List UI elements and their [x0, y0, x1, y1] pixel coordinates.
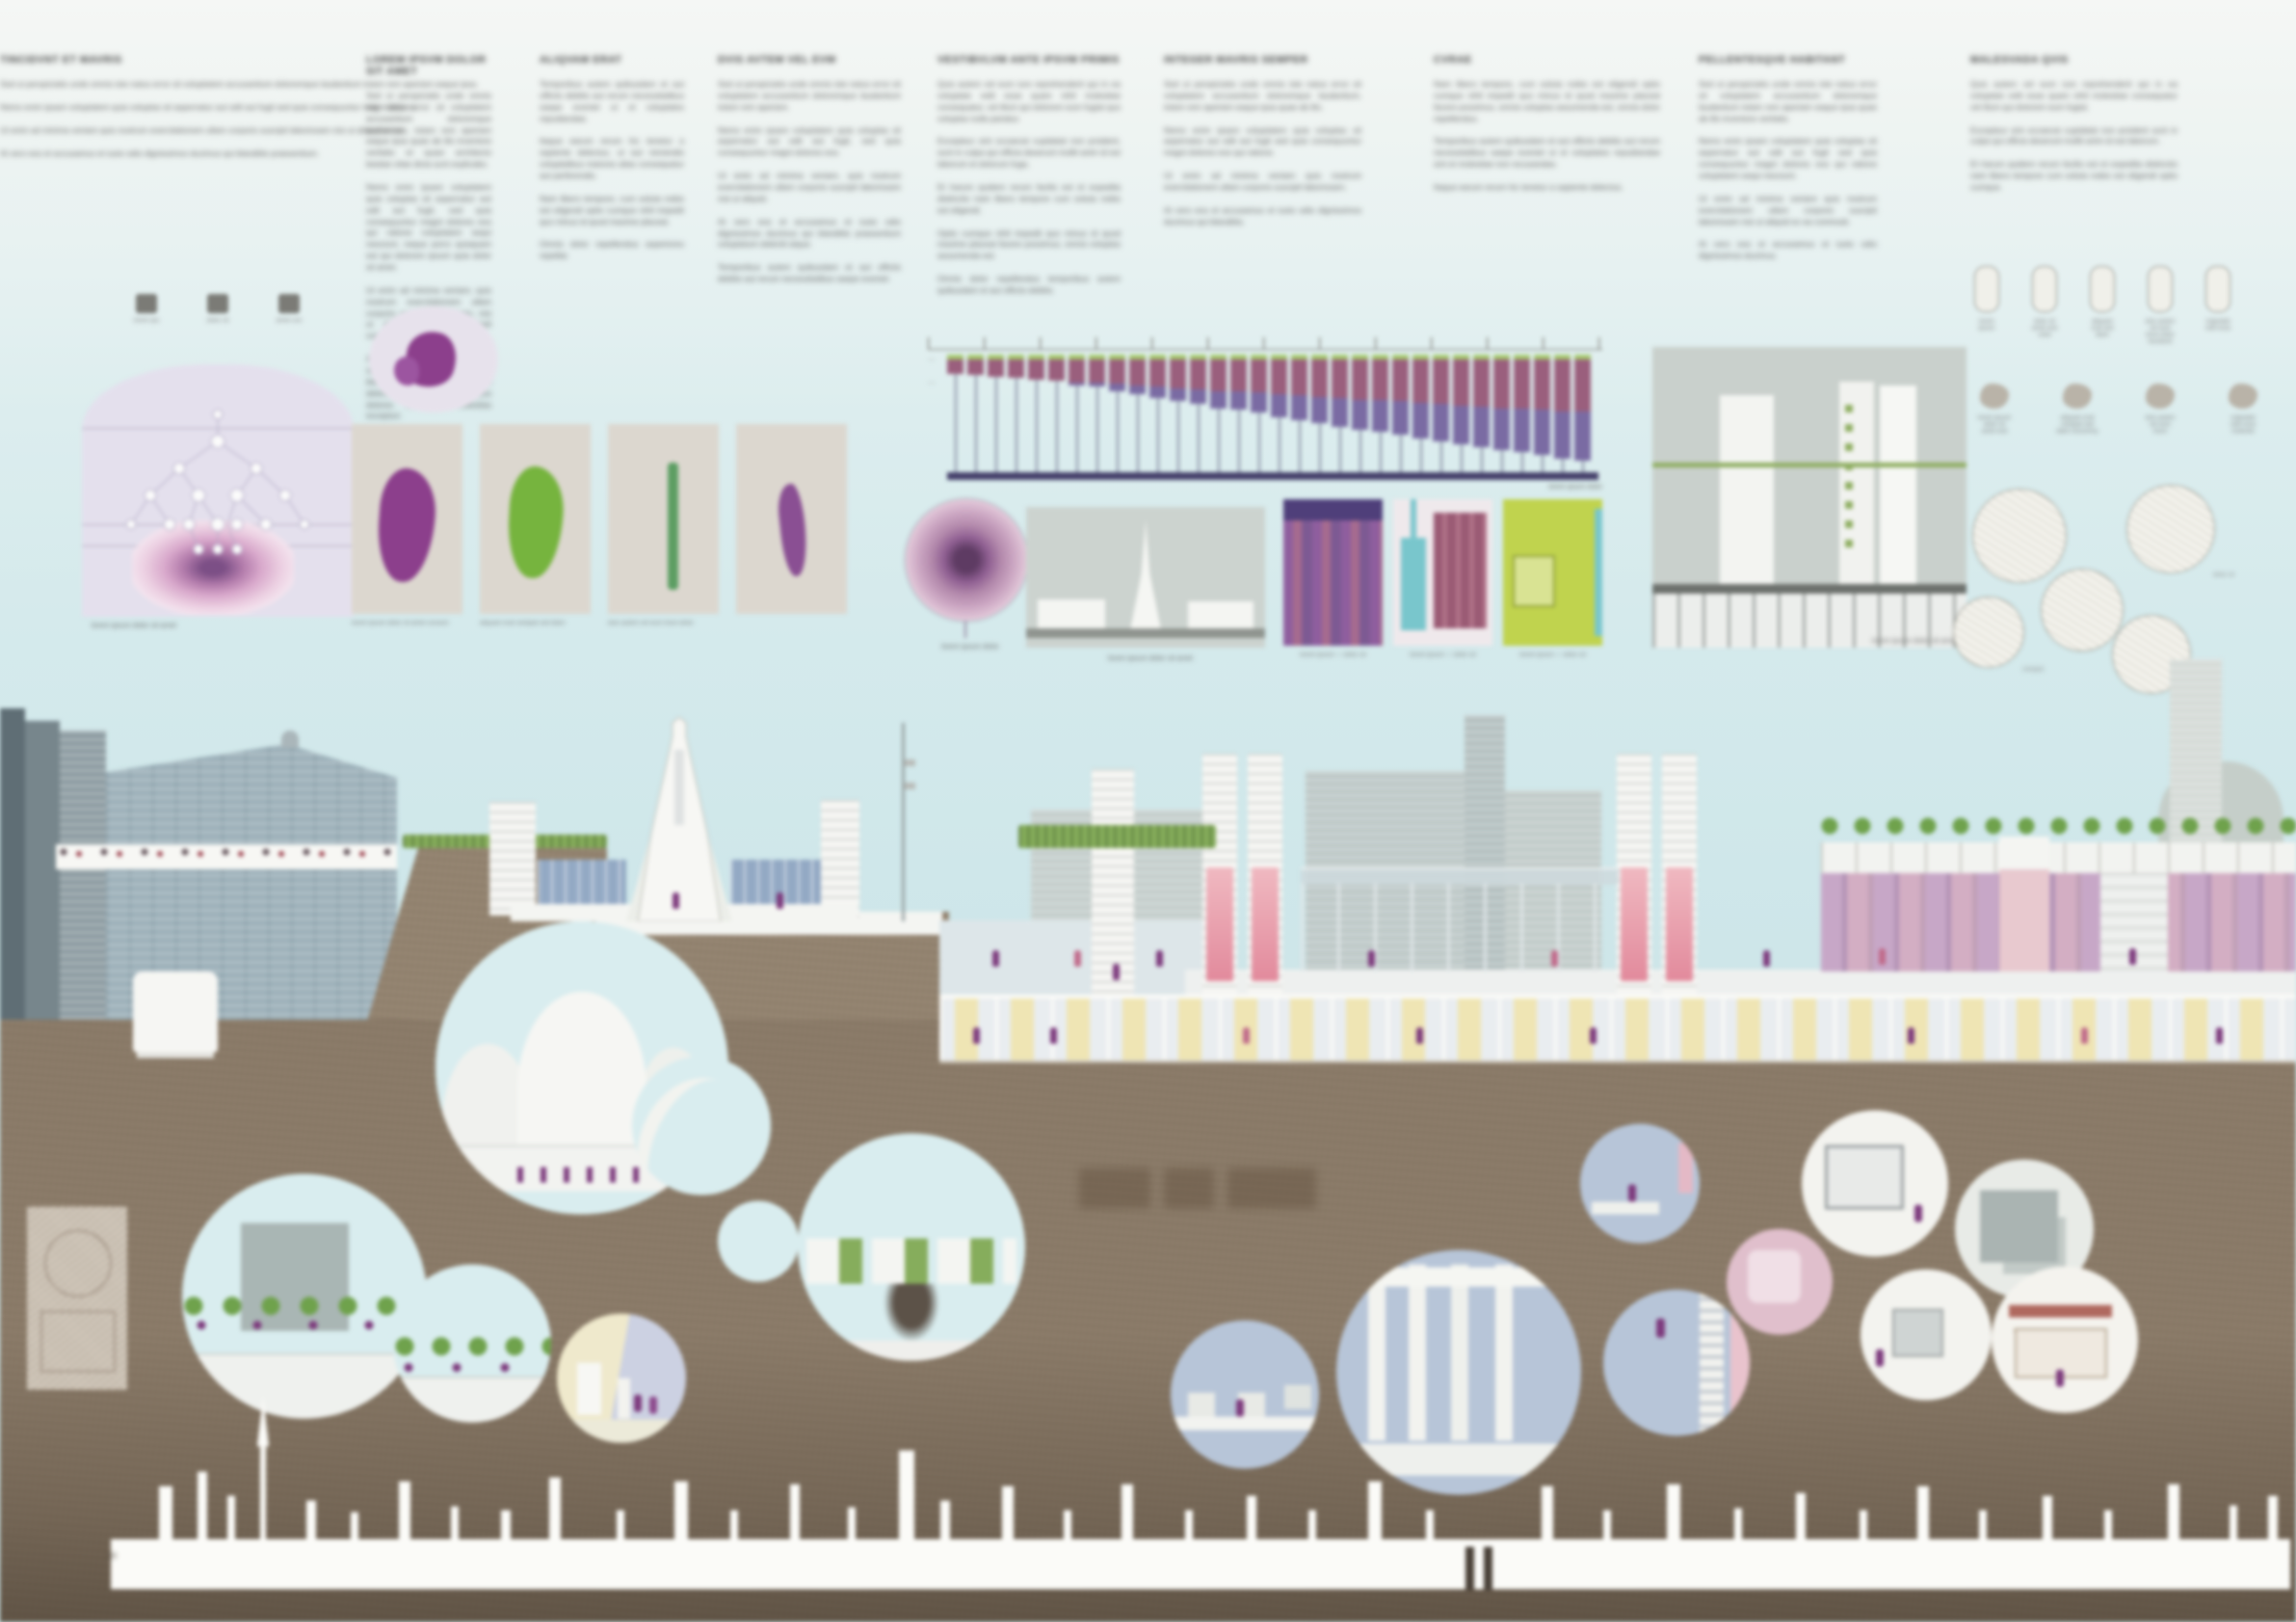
column-paragraph: Et harum quidem rerum facilis est et exp… — [1970, 159, 2177, 194]
mast-flag — [905, 783, 915, 789]
section-caption: lorem ipsum dolor sit amet — [1812, 636, 1957, 646]
legend-item: amet con — [266, 294, 312, 324]
callout-detail — [634, 1395, 642, 1412]
callout-circle — [182, 1174, 427, 1419]
skyline-spike — [159, 1486, 172, 1539]
capsule-icon — [2090, 266, 2115, 312]
chart-y-label: –– — [928, 357, 935, 363]
person-figure — [1590, 1027, 1597, 1044]
skyline-spike — [1484, 1547, 1492, 1590]
skyline-spike — [617, 1510, 624, 1539]
column-paragraph: Itaque earum rerum hic tenetur a sapient… — [1434, 182, 1660, 194]
sunken-plaza — [939, 920, 1207, 997]
plan-rect-motif — [40, 1311, 116, 1372]
legend-item: lorem ips — [123, 294, 170, 324]
person-figure — [1908, 1027, 1914, 1044]
phase-column — [967, 355, 984, 375]
phase-column — [1372, 355, 1388, 432]
callout-circle — [1861, 1269, 1992, 1400]
callout-detail — [1825, 1145, 1904, 1210]
skyline-spike — [451, 1506, 459, 1539]
mast-flag — [905, 759, 915, 766]
sketch-label: duis autem vel eum iriure — [2131, 414, 2189, 435]
sketch-circle — [1953, 597, 2024, 668]
person-figure — [673, 892, 679, 909]
flank-tower-west — [489, 802, 536, 916]
skyline-spike — [1426, 1510, 1434, 1539]
phase-column — [1028, 355, 1044, 380]
column-paragraph: Optio cumque nihil impedit quo minus id … — [937, 228, 1121, 263]
callout-detail — [1592, 1202, 1658, 1215]
skyline-spike — [306, 1501, 316, 1539]
elevation-wing — [1188, 601, 1254, 628]
column-paragraph: At vero eos et accusamus et iusto odio d… — [1699, 239, 1877, 262]
floor-plan — [1393, 499, 1492, 646]
glass-building-dome — [281, 731, 299, 748]
legend-label: lorem ips — [123, 317, 170, 324]
chart-y-label: –– — [928, 380, 935, 386]
sketch-label: aliquam erat volutpat sed diam nonummy — [2048, 414, 2106, 435]
terrace-balustrade-with-people — [56, 844, 397, 869]
phase-column — [1453, 355, 1469, 444]
node-network — [82, 364, 354, 617]
phase-column — [1392, 355, 1409, 435]
roof-hedge — [1018, 825, 1216, 848]
plaza-tower — [1662, 754, 1697, 995]
column-paragraph: Sed ut perspiciatis unde omnis iste natu… — [1699, 79, 1877, 124]
skyline-spike — [790, 1484, 800, 1539]
callout-detail — [1678, 1143, 1693, 1193]
skyline-spike — [549, 1477, 561, 1539]
urban-section-panel: lorem ipsum dolor sit amet — [1652, 347, 1966, 648]
city-map-tile — [736, 424, 847, 614]
section-tower — [1720, 395, 1774, 584]
map-panel — [736, 424, 847, 626]
phase-column — [1554, 355, 1570, 459]
skyline-spike — [1979, 1510, 1987, 1539]
silo-row — [1821, 873, 2296, 971]
phase-column — [1069, 355, 1085, 386]
column-heading: MALESVADA QVIS — [1970, 54, 2177, 66]
phase-column — [1210, 355, 1227, 409]
chart-base-datum — [947, 472, 1598, 480]
callout-detail — [393, 1337, 551, 1378]
ghost-lettering — [1227, 1168, 1316, 1209]
section-ground-band — [1652, 584, 1966, 594]
legend-label: amet con — [266, 317, 312, 324]
skyline-spike — [1542, 1486, 1553, 1539]
person-figure — [1074, 950, 1081, 967]
person-figure — [1416, 1027, 1423, 1044]
sketch-circle — [2126, 485, 2215, 573]
column-heading: PELLENTESQVE HABITANT — [1699, 54, 1877, 66]
callout-circle — [1802, 1110, 1948, 1257]
plan-caption: lorem ipsum — dolor sit — [1393, 651, 1492, 658]
phase-column — [1433, 355, 1449, 441]
skyline-spike — [351, 1512, 358, 1539]
chart-bars — [947, 355, 1598, 472]
column-paragraph: Excepteur sint occaecat cupidatat non pr… — [1970, 125, 2177, 148]
phase-column — [1008, 355, 1024, 378]
phase-column — [1352, 355, 1368, 430]
column-paragraph: Ut enim ad minima veniam, quis nostrum e… — [718, 171, 901, 205]
legend-label: dolor sit — [195, 317, 241, 324]
column-paragraph: Quis autem vel eum iure reprehenderit qu… — [937, 79, 1121, 124]
column-paragraph: Nemo enim ipsam voluptatem quia voluptas… — [1699, 136, 1877, 181]
phase-column — [1251, 355, 1267, 412]
skyline-scale-bar: 20 — [0, 1475, 2296, 1622]
capsule-icon — [2148, 266, 2173, 312]
skyline-spike — [1368, 1481, 1382, 1539]
skyline-spike — [674, 1481, 688, 1539]
survey-mast — [902, 723, 905, 921]
text-column: ALIQVAM ERAT Temporibus autem quibusdam … — [540, 54, 684, 274]
elevation-caption: lorem ipsum dolor sit amet — [1108, 653, 1262, 663]
left-dark-building — [0, 708, 25, 1026]
site-blob-2 — [394, 357, 419, 386]
person-figure — [2129, 948, 2136, 965]
callout-circle — [1727, 1229, 1833, 1335]
phase-column — [1534, 355, 1550, 455]
column-heading: VESTIBVLVM ANTE IPSVM PRIMIS — [937, 54, 1121, 66]
text-column: MALESVADA QVIS Quis autem vel eum iure r… — [1970, 54, 2177, 205]
person-figure — [1113, 964, 1120, 980]
plan-caption: lorem ipsum — dolor sit — [1503, 651, 1602, 658]
callout-detail — [1628, 1184, 1636, 1202]
map-highlight-blob — [375, 466, 438, 584]
elevation-panel — [1026, 507, 1265, 648]
plan-caption: lorem ipsum — dolor sit — [1283, 651, 1383, 658]
plan-panel: lorem ipsum — dolor sit — [1503, 499, 1602, 658]
column-paragraph: Nemo enim ipsam voluptatem quia voluptas… — [718, 125, 901, 160]
person-figure — [777, 892, 783, 909]
phase-column — [1271, 355, 1287, 417]
chart-top-ruler — [928, 337, 1602, 350]
sketch-label: lorem ipsum dolor sit amet erat — [1966, 414, 2023, 435]
person-figure — [1879, 948, 1886, 965]
skyline-spike — [1185, 1510, 1193, 1539]
column-paragraph: Temporibus autem quibusdam et aut offici… — [718, 262, 901, 285]
callout-detail — [577, 1363, 600, 1415]
pink-banner — [1621, 867, 1649, 981]
sketch-circle-label: volutpat — [2022, 666, 2044, 673]
skyline-spike — [730, 1510, 738, 1539]
callout-detail — [182, 1296, 427, 1355]
sketch-item: aliquam erat volutpat sed diam nonummy — [2048, 384, 2106, 435]
sketch-icon — [1980, 384, 2009, 409]
left-building — [60, 731, 106, 1024]
skyline-spike — [1917, 1486, 1929, 1539]
callout-detail — [182, 1353, 427, 1419]
phase-column — [988, 355, 1004, 377]
silo-hall-frame — [1821, 842, 2296, 873]
phase-column — [1109, 355, 1125, 391]
skyline-spike — [198, 1472, 207, 1539]
column-paragraph: At vero eos et accusamus et iusto odio d… — [0, 148, 478, 160]
callout-detail — [880, 1284, 943, 1347]
callout-circle — [1603, 1290, 1750, 1436]
person-figure — [1243, 1027, 1250, 1044]
sketch-item: duis autem vel eum iriure — [2131, 384, 2189, 435]
canopy-columns — [1301, 883, 1619, 971]
pink-banner — [1666, 867, 1694, 981]
skyline-spike — [227, 1496, 235, 1539]
capsule-icon — [2205, 266, 2230, 312]
architecture-presentation-board: LOREM IPSVM DOLOR SIT AMET Sed ut perspi… — [0, 0, 2296, 1622]
skyline-spike — [940, 1501, 950, 1539]
capsule-label: duis autem vel eum iriure dolor hendreri… — [2139, 318, 2181, 345]
skyline-spike — [1603, 1510, 1611, 1539]
skyline-spike — [1247, 1496, 1256, 1539]
column-paragraph: Quis autem vel eum iure reprehenderit qu… — [1970, 79, 2177, 114]
sketch-icon — [2063, 384, 2092, 409]
column-paragraph: Excepteur sint occaecat cupidatat non pr… — [937, 136, 1121, 171]
map-highlight-blob — [668, 463, 678, 590]
callout-circle — [1992, 1266, 2138, 1413]
skyline-spike — [848, 1507, 856, 1539]
skyline-spike — [1064, 1510, 1071, 1539]
plaza-tower — [1617, 754, 1651, 995]
callout-detail — [557, 1420, 686, 1443]
skyline-spike — [501, 1510, 511, 1539]
callout-detail — [1700, 1290, 1723, 1436]
skyline-spike — [2043, 1496, 2052, 1539]
callout-detail — [1748, 1250, 1801, 1303]
buried-vessel — [133, 971, 218, 1052]
sketch-icon — [2146, 384, 2175, 409]
phase-column — [1089, 355, 1105, 386]
callout-detail — [1876, 1349, 1884, 1367]
green-deck-line — [1652, 463, 1966, 467]
sketch-label: vulputate velit esse molestie — [2214, 414, 2272, 435]
map-caption: aliquam erat volutpat sed diam — [480, 620, 591, 626]
sketch-circle — [2041, 569, 2124, 651]
column-paragraph: Sed ut perspiciatis unde omnis iste natu… — [0, 79, 478, 91]
city-map-tile — [608, 424, 719, 614]
person-figure — [992, 950, 999, 967]
phase-column — [1574, 355, 1591, 461]
capsule-item: vulputate velit esse — [2197, 266, 2239, 345]
person-figure — [1050, 1027, 1057, 1044]
column-paragraph: Sed ut perspiciatis unde omnis iste natu… — [718, 79, 901, 114]
sepia-plan-inset — [27, 1207, 127, 1390]
sketch-icon — [2229, 384, 2257, 409]
column-paragraph: Sed ut perspiciatis unde omnis iste natu… — [1164, 79, 1361, 114]
green-balconies — [1845, 405, 1853, 549]
chart-caption: lorem ipsum dolor — [1548, 484, 1602, 491]
text-column: DVIS AVTEM VEL EVM Sed ut perspiciatis u… — [718, 54, 901, 297]
callout-detail — [798, 1341, 1025, 1361]
sketch-item: lorem ipsum dolor sit amet erat — [1966, 384, 2023, 435]
callout-detail — [1336, 1444, 1581, 1476]
column-paragraph: Omnis dolor repellendus asperiores repel… — [540, 239, 684, 262]
stack-cap — [1999, 837, 2049, 869]
column-paragraph: Nam libero tempore, cum soluta nobis est… — [1434, 79, 1660, 124]
person-figure — [1551, 950, 1558, 967]
callout-detail — [1656, 1318, 1665, 1338]
skyline-spike — [399, 1481, 410, 1539]
person-figure — [973, 1027, 980, 1044]
legend-icon — [207, 294, 228, 313]
column-paragraph: Omnis dolor repellendus temporibus autem… — [937, 274, 1121, 297]
map-panel: aliquam erat volutpat sed diam — [480, 424, 591, 626]
callout-detail — [517, 1167, 647, 1182]
column-heading: ALIQVAM ERAT — [540, 54, 684, 66]
person-figure — [1368, 950, 1375, 967]
map-panel-row: lorem ipsum dolor sit amet consect aliqu… — [352, 424, 847, 626]
capsule-item: aliquam erat sed diam — [2081, 266, 2124, 345]
column-heading: DVIS AVTEM VEL EVM — [718, 54, 901, 66]
skyline-spike — [2104, 1510, 2112, 1539]
skyline-spike — [1796, 1493, 1806, 1539]
sunken-plaza-tower — [1092, 769, 1134, 995]
plan-panel-row: lorem ipsum — dolor sit lorem ipsum — do… — [1283, 499, 1602, 658]
callout-detail — [806, 1238, 1016, 1284]
callout-detail — [1368, 1264, 1386, 1441]
skyline-spike — [1667, 1484, 1680, 1539]
phase-column — [1493, 355, 1510, 450]
radial-stem — [964, 621, 966, 638]
floor-plan — [1503, 499, 1602, 646]
city-map-tile — [480, 424, 591, 614]
phase-column — [1514, 355, 1530, 452]
capsule-label: aliquam erat sed diam — [2081, 318, 2124, 338]
silo-roof-garden-trees — [1821, 815, 2296, 842]
underground-concourse — [939, 995, 2296, 1063]
ghost-lettering — [1164, 1168, 1214, 1209]
map-panel: lorem ipsum dolor sit amet consect — [352, 424, 462, 626]
column-paragraph: Ut enim ad minima veniam quis nostrum ex… — [1164, 171, 1361, 194]
map-caption: duis autem vel eum iriure dolor — [608, 620, 719, 626]
skyline-spike — [1734, 1508, 1742, 1539]
callout-detail — [1351, 1267, 1567, 1287]
phase-column — [1291, 355, 1307, 420]
sketch-circle-label: dolor sit — [2213, 572, 2234, 578]
column-paragraph: Temporibus autem quibusdam et aut offici… — [1434, 136, 1660, 171]
text-column: INTEGER MAVRIS SEMPER Sed ut perspiciati… — [1164, 54, 1361, 240]
column-heading: TINCIDVNT ET MAVRIS — [0, 54, 478, 66]
map-highlight-blob — [776, 483, 810, 577]
plan-panel: lorem ipsum — dolor sit — [1283, 499, 1383, 658]
column-paragraph: Nam libero tempore, cum soluta nobis est… — [540, 194, 684, 228]
legend-icon — [136, 294, 157, 313]
drill-spire — [607, 717, 752, 921]
elevation-wing — [1038, 599, 1105, 628]
callout-circle — [718, 1201, 799, 1282]
phase-column — [1170, 355, 1186, 401]
column-paragraph: Nemo enim ipsam voluptatem quia voluptas… — [366, 182, 491, 274]
text-column: CVRAE Nam libero tempore, cum soluta nob… — [1434, 54, 1660, 205]
phase-column — [1048, 355, 1065, 381]
radial-plan-diagram — [906, 499, 1027, 621]
callout-detail — [2056, 1369, 2064, 1387]
ghost-lettering — [1079, 1168, 1150, 1209]
callout-circle — [1336, 1250, 1581, 1495]
column-paragraph: At vero eos et accusamus et iusto odio d… — [1164, 205, 1361, 228]
plaza-tower — [1202, 754, 1237, 995]
skyline-spike — [1860, 1510, 1867, 1539]
callout-detail — [1892, 1309, 1943, 1357]
text-column: PELLENTESQVE HABITANT Sed ut perspiciati… — [1699, 54, 1877, 274]
callout-detail — [1171, 1417, 1319, 1430]
sketch-item: vulputate velit esse molestie — [2214, 384, 2272, 435]
skyline-spike — [1122, 1484, 1133, 1539]
column-heading: INTEGER MAVRIS SEMPER — [1164, 54, 1361, 66]
phase-column — [947, 355, 963, 374]
map-highlight-blob — [506, 465, 566, 580]
scale-label: 20 — [108, 1552, 117, 1560]
skyline-spike — [1002, 1486, 1014, 1539]
phase-column — [1230, 355, 1247, 410]
column-paragraph: Nemo enim ipsam voluptatem quia voluptas… — [0, 102, 478, 114]
column-paragraph: Ut enim ad minima veniam quis nostrum ex… — [0, 125, 478, 137]
text-column: TINCIDVNT ET MAVRIS Sed ut perspiciatis … — [0, 54, 478, 171]
dome-diagram-caption: lorem ipsum dolor sit amet — [92, 621, 255, 630]
legend-icon — [278, 294, 300, 313]
site-context-ellipse — [369, 306, 498, 412]
floor-plan — [1283, 499, 1383, 646]
column-paragraph: Itaque earum rerum hic tenetur a sapient… — [540, 136, 684, 181]
phasing-depth-chart: –– –– lorem ipsum dolor — [928, 337, 1602, 503]
capsule-item: lorem ipsum — [1966, 266, 2008, 345]
phase-column — [1311, 355, 1328, 423]
callout-circle — [393, 1264, 551, 1423]
callout-detail — [1980, 1190, 2058, 1263]
sketch-icon-row: lorem ipsum dolor sit amet erat aliquam … — [1966, 384, 2272, 435]
callout-detail — [393, 1376, 551, 1423]
skyline-spike — [1465, 1547, 1474, 1590]
callout-circle — [1580, 1124, 1700, 1243]
callout-detail — [517, 992, 647, 1150]
callout-circle — [632, 1056, 771, 1195]
pink-banner — [1252, 867, 1280, 981]
scale-band — [111, 1539, 2290, 1589]
skyline-spike — [899, 1450, 914, 1539]
plaza-tower — [1248, 754, 1282, 995]
callout-circle — [1171, 1320, 1319, 1469]
plan-panel: lorem ipsum — dolor sit — [1393, 499, 1492, 658]
column-paragraph: At vero eos et accusamus et iusto odio d… — [718, 217, 901, 252]
capsule-item: dolor sit amet erat volut — [2023, 266, 2066, 345]
capsule-item: duis autem vel eum iriure dolor hendreri… — [2139, 266, 2181, 345]
capsule-icon — [2032, 266, 2057, 312]
legend-item: dolor sit — [195, 294, 241, 324]
central-pink-stack — [1999, 837, 2049, 971]
person-figure — [1763, 950, 1770, 967]
capsule-icon-row: lorem ipsum dolor sit amet erat volut al… — [1966, 266, 2239, 345]
skyline-spike — [2230, 1505, 2237, 1539]
callout-detail — [1914, 1205, 1922, 1222]
sketch-circle — [1972, 489, 2067, 583]
spire-elevation — [1119, 520, 1173, 628]
radial-caption: lorem ipsum dolor — [927, 642, 1014, 651]
capsule-icon — [1974, 266, 1999, 312]
callout-detail — [1236, 1399, 1244, 1417]
column-paragraph: Temporibus autem quibusdam et aut offici… — [540, 79, 684, 124]
column-paragraph: Ut enim ad minima veniam quis nostrum ex… — [1699, 194, 1877, 228]
phase-column — [1149, 355, 1166, 398]
skyline-spike — [2268, 1496, 2278, 1539]
column-heading: CVRAE — [1434, 54, 1660, 66]
callout-circle — [798, 1133, 1025, 1361]
person-figure — [2216, 1027, 2223, 1044]
map-panel: duis autem vel eum iriure dolor — [608, 424, 719, 626]
phase-column — [1473, 355, 1490, 447]
section-tower — [1880, 386, 1916, 584]
person-figure — [2081, 1027, 2088, 1044]
left-dark-building — [25, 721, 60, 1026]
callout-detail — [632, 1060, 768, 1195]
